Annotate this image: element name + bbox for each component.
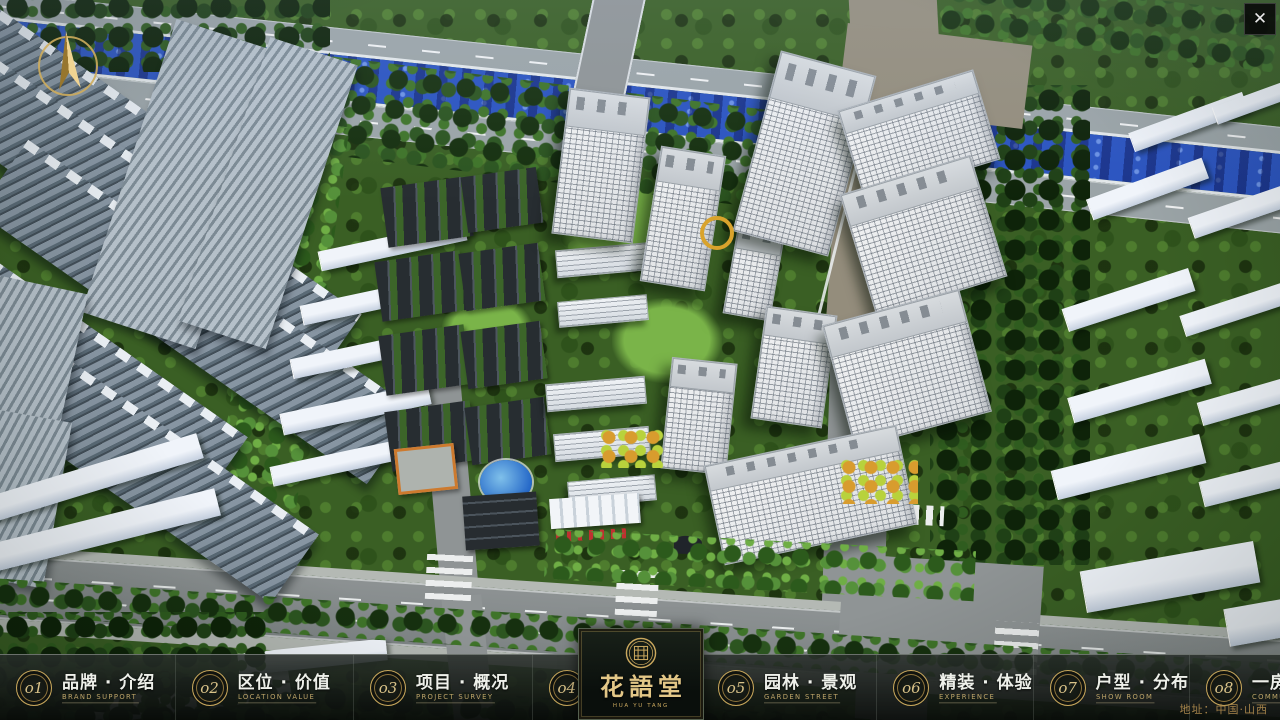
nav-item-label-zh: 品牌 · 介绍 <box>62 668 175 693</box>
nav-item-badge: o2 <box>192 670 228 706</box>
nav-item-label-en: BRAND SUPPORT <box>62 693 139 703</box>
nav-item-fine-decoration[interactable]: o6 精装 · 体验 EXPERIENCE <box>876 655 1032 720</box>
brand-tagline: HUA YU TANG <box>613 703 669 709</box>
nav-item-number: o7 <box>1058 679 1077 697</box>
nav-item-label-zh: 区位 · 价值 <box>238 668 353 693</box>
brand-seal-icon <box>625 637 657 673</box>
project-address: 地址：中国·山西 <box>1180 701 1269 717</box>
amenity-building <box>394 443 458 495</box>
nav-item-badge: o1 <box>16 670 52 706</box>
nav-item-garden-landscape[interactable]: o5 园林 · 景观 GARDEN STREET <box>702 655 876 720</box>
nav-item-number: o3 <box>379 679 398 697</box>
mid-rise-building <box>545 376 647 413</box>
nav-item-number: o2 <box>200 679 219 697</box>
logo-panel[interactable]: 花語堂 HUA YU TANG <box>578 628 704 720</box>
close-icon: ✕ <box>1253 11 1267 28</box>
residential-row <box>1223 595 1280 646</box>
courtyard-cluster <box>458 243 545 312</box>
courtyard-cluster <box>460 167 543 233</box>
autumn-trees <box>838 458 918 504</box>
nav-item-location-value[interactable]: o2 区位 · 价值 LOCATION VALUE <box>175 655 353 720</box>
nav-item-label-en: GARDEN STREET <box>764 693 840 703</box>
nav-item-label-zh: 项目 · 概况 <box>416 668 532 693</box>
nav-item-number: o5 <box>727 679 746 697</box>
courtyard-cluster <box>378 324 472 395</box>
entrance-gate <box>462 491 540 550</box>
courtyard-cluster <box>374 250 468 321</box>
compass-icon <box>38 36 98 96</box>
landscape-ring <box>700 216 734 250</box>
nav-item-label-en: EXPERIENCE <box>939 693 996 703</box>
nav-item-label-zh: 园林 · 景观 <box>764 668 876 693</box>
nav-item-label-zh: 户型 · 分布 <box>1096 668 1189 693</box>
nav-group-left: o1 品牌 · 介绍 BRAND SUPPORT o2 区位 · 价值 LOCA… <box>0 655 578 720</box>
courtyard-cluster <box>460 321 547 390</box>
nav-item-badge: o6 <box>893 670 929 706</box>
brand-title: 花語堂 <box>595 675 687 699</box>
nav-item-number: o1 <box>25 679 44 697</box>
close-button[interactable]: ✕ <box>1244 3 1276 35</box>
residential-row <box>1080 541 1261 613</box>
nav-item-badge: o5 <box>718 670 754 706</box>
autumn-trees <box>598 428 668 468</box>
nav-item-number: o8 <box>1215 679 1234 697</box>
nav-item-floorplan-distribution[interactable]: o7 户型 · 分布 SHOW ROOM <box>1033 655 1189 720</box>
courtyard-cluster <box>380 176 474 247</box>
nav-item-badge: o7 <box>1050 670 1086 706</box>
nav-item-label-en: SHOW ROOM <box>1096 693 1155 703</box>
residential-row <box>1199 455 1280 508</box>
masterplan-render[interactable]: ✕ o1 品牌 · 介绍 BRAND SUPPORT o2 区位 · 价值 LO… <box>0 0 1280 720</box>
high-rise-tower <box>660 357 737 475</box>
compass-needle <box>49 30 87 90</box>
nav-item-number: o4 <box>557 679 576 697</box>
nav-item-badge: o3 <box>370 670 406 706</box>
nav-item-number: o6 <box>902 679 921 697</box>
nav-item-project-survey[interactable]: o3 项目 · 概况 PROJECT SURVEY <box>353 655 532 720</box>
nav-item-label-en: PROJECT SURVEY <box>416 693 495 703</box>
nav-item-label-zh: 精装 · 体验 <box>939 668 1032 693</box>
nav-item-label-en: LOCATION VALUE <box>238 693 317 703</box>
crosswalk <box>425 553 473 601</box>
sales-canopy <box>549 493 641 529</box>
nav-item-brand-intro[interactable]: o1 品牌 · 介绍 BRAND SUPPORT <box>0 655 175 720</box>
courtyard-cluster <box>464 397 551 466</box>
nav-item-label-zh: 一房 · 一景 <box>1252 668 1280 693</box>
